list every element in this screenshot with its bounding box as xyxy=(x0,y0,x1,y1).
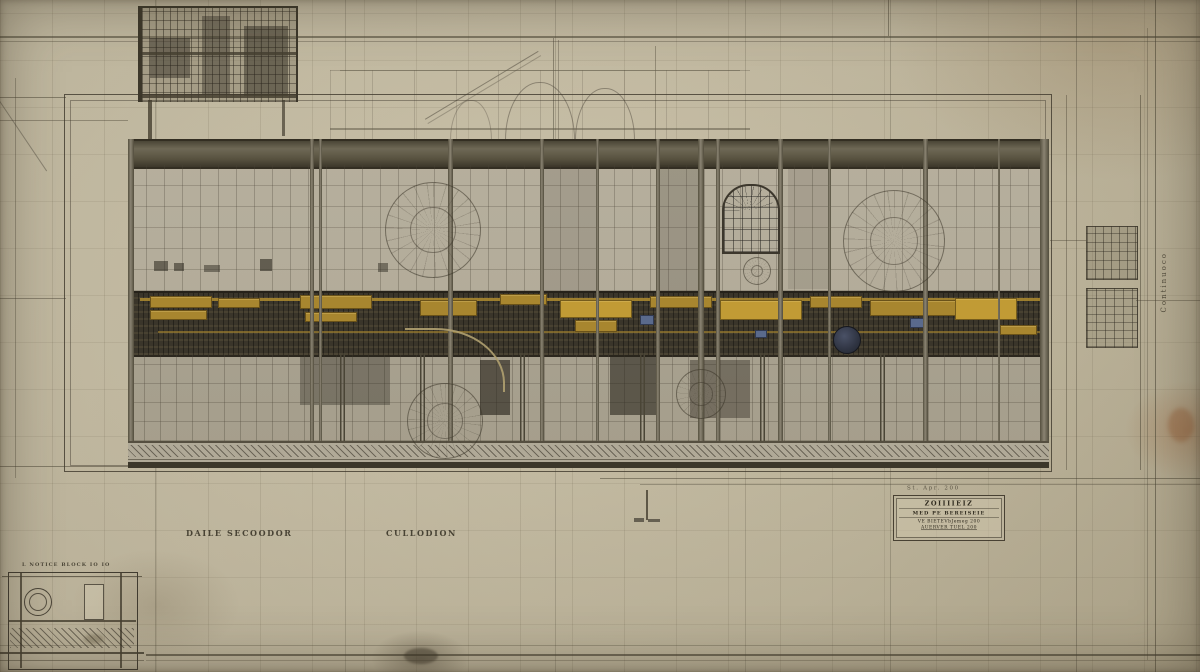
corner-detail-caption: L NOTICE BLOCK IO IO xyxy=(22,562,110,568)
inset-block xyxy=(244,26,288,96)
window-shade xyxy=(660,165,702,291)
machine-glyph xyxy=(154,261,168,271)
machine-glyph xyxy=(204,265,220,272)
flywheel-dark-blue xyxy=(833,326,861,354)
bottom-rule xyxy=(0,645,1200,646)
margin-rule-right-2 xyxy=(1147,28,1148,660)
column xyxy=(319,139,322,441)
machinery-highlight xyxy=(218,298,260,308)
column xyxy=(778,139,783,441)
column xyxy=(540,139,544,441)
section-marker-foot xyxy=(634,518,644,522)
fold-line xyxy=(1076,0,1077,672)
trestle-legs xyxy=(760,353,765,441)
trestle-legs xyxy=(640,353,645,441)
machinery-highlight xyxy=(150,296,212,308)
machinery-highlight xyxy=(720,300,802,320)
section-marker-foot xyxy=(648,519,660,522)
column xyxy=(128,139,134,441)
column xyxy=(656,139,660,441)
machinery-highlight xyxy=(955,298,1017,320)
caption-left: DAILE SECOODOR xyxy=(186,528,293,538)
ground-line xyxy=(128,459,1049,460)
inset-block xyxy=(202,16,230,94)
right-structure-rule xyxy=(1140,95,1141,470)
column-right-edge xyxy=(1040,139,1049,441)
column xyxy=(596,139,599,441)
machinery-highlight xyxy=(1000,325,1037,335)
column xyxy=(310,139,314,441)
paper-stain xyxy=(1168,408,1194,442)
machine-glyph xyxy=(260,259,272,271)
corner-detail-rail xyxy=(8,620,136,622)
blueprint-sheet: Continuoco DAILE SECOODOR CULLODION St. … xyxy=(0,0,1200,672)
machinery-highlight xyxy=(810,296,862,308)
trestle-legs xyxy=(340,353,345,441)
corner-detail-window xyxy=(84,584,104,620)
bottom-rule xyxy=(146,654,1200,656)
right-detail-block-upper xyxy=(1086,226,1138,280)
paper-stain xyxy=(404,648,438,664)
bottom-rule xyxy=(146,660,1200,661)
title-block-line1: ZOIIIIEIZ xyxy=(899,500,999,509)
machine-glyph xyxy=(174,263,184,271)
title-block-line2: MED PE BEREISEIE xyxy=(899,511,999,517)
right-detail-block-lower xyxy=(1086,288,1138,348)
lower-zone xyxy=(128,353,1049,441)
machinery-highlight xyxy=(870,300,962,316)
main-section-drawing xyxy=(128,139,1049,468)
corner-detail-pulley-inner xyxy=(29,593,47,611)
corner-detail-hatch xyxy=(10,628,134,648)
vertical-margin-note: Continuoco xyxy=(1160,252,1168,313)
flywheel-large-left xyxy=(385,182,481,278)
section-marker xyxy=(630,490,670,526)
corner-detail-sill xyxy=(0,660,144,661)
paper-stain xyxy=(84,634,104,644)
title-block-line4: AUERVER TUEL 200 xyxy=(899,525,999,530)
caption-center: CULLODION xyxy=(386,528,457,538)
flywheel-lower-left xyxy=(407,383,483,459)
title-block-note-above: St. Apr. 200 xyxy=(907,485,960,491)
margin-rule-right xyxy=(1155,0,1156,672)
machinery-highlight xyxy=(150,310,207,320)
inset-detail-top-left xyxy=(138,6,298,102)
corner-detail-bottom-left: L NOTICE BLOCK IO IO xyxy=(0,556,144,672)
lower-machine xyxy=(610,355,660,415)
window-shade xyxy=(540,165,598,291)
trestle-legs xyxy=(880,353,885,441)
top-tick xyxy=(888,0,889,36)
inset-beam xyxy=(142,52,296,55)
title-block: St. Apr. 200 ZOIIIIEIZ MED PE BEREISEIE … xyxy=(893,483,1005,541)
title-block-text: ZOIIIIEIZ MED PE BEREISEIE VE BIETEVbJem… xyxy=(899,500,999,530)
trestle-legs xyxy=(520,353,525,441)
gear-lower-mid xyxy=(676,369,726,419)
left-margin-rule xyxy=(15,78,16,478)
section-marker-stem xyxy=(646,490,648,520)
column xyxy=(828,139,831,441)
left-extension-line xyxy=(0,298,66,299)
inset-block xyxy=(150,38,190,78)
left-extension-line xyxy=(0,97,66,98)
machinery-blue-chip xyxy=(755,330,767,338)
title-block-line3: VE BIETEVbJemeg 200 xyxy=(899,518,999,525)
ground-line xyxy=(128,441,1049,443)
ground-band xyxy=(128,462,1049,468)
column xyxy=(998,139,1000,441)
bottom-rule xyxy=(600,478,1200,479)
title-block-box: ZOIIIIEIZ MED PE BEREISEIE VE BIETEVbJem… xyxy=(893,495,1005,541)
right-tie-line xyxy=(1050,240,1086,241)
flywheel-large-right xyxy=(843,190,945,292)
right-tie-line xyxy=(1136,300,1200,301)
gear-small-upper xyxy=(743,257,771,285)
machine-glyph xyxy=(378,263,388,272)
ground-hatch xyxy=(128,445,1049,457)
right-structure-rule xyxy=(1066,95,1067,470)
column xyxy=(923,139,928,441)
roof-beam xyxy=(340,70,740,71)
machinery-blue-chip xyxy=(640,315,654,325)
corner-detail-sill xyxy=(0,652,144,654)
window-shade xyxy=(788,169,830,289)
